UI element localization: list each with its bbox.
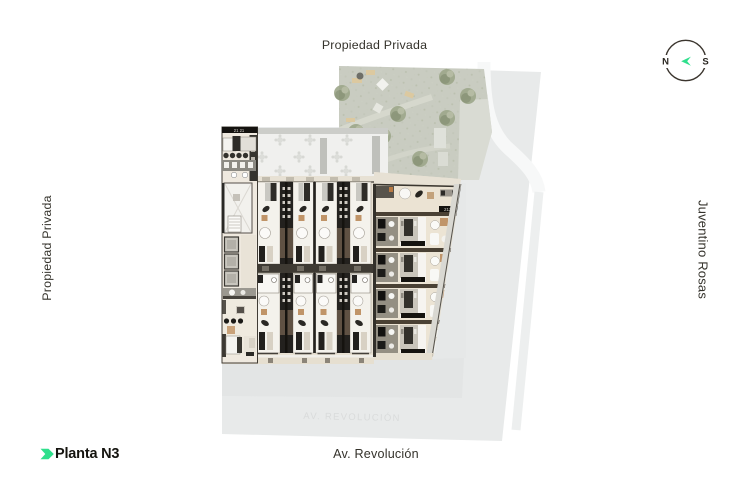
svg-text:21 21: 21 21 bbox=[234, 128, 245, 133]
svg-text:S: S bbox=[702, 57, 708, 68]
svg-text:N: N bbox=[662, 57, 669, 68]
svg-text:AV. REVOLUCIÓN: AV. REVOLUCIÓN bbox=[303, 411, 401, 424]
